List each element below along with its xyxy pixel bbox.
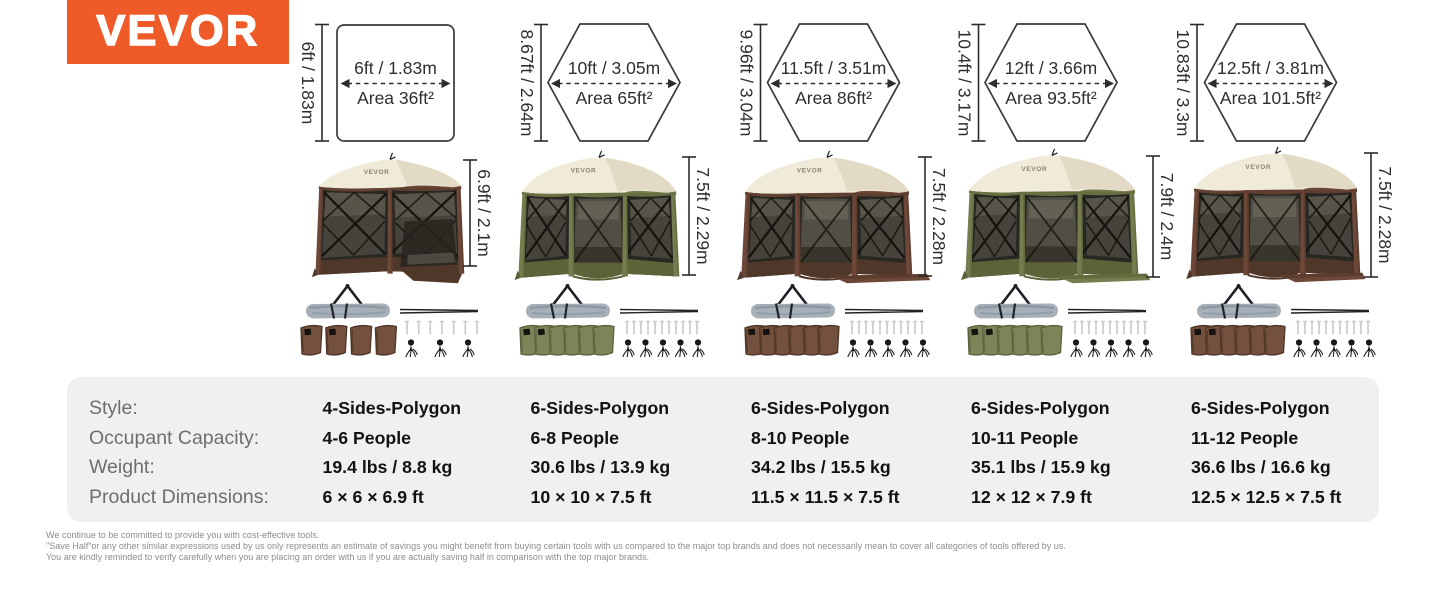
svg-text:10.4ft / 3.17m: 10.4ft / 3.17m (955, 29, 975, 136)
svg-text:10.83ft / 3.3m: 10.83ft / 3.3m (1173, 29, 1193, 136)
svg-text:VEVOR: VEVOR (1021, 166, 1047, 173)
svg-text:7.9ft / 2.4m: 7.9ft / 2.4m (1157, 173, 1177, 261)
svg-text:VEVOR: VEVOR (364, 169, 390, 176)
svg-text:7.5ft / 2.28m: 7.5ft / 2.28m (1375, 166, 1395, 263)
svg-text:6.9ft / 2.1m: 6.9ft / 2.1m (474, 169, 494, 257)
svg-text:8.67ft / 2.64m: 8.67ft / 2.64m (517, 29, 537, 136)
svg-text:Area 86ft²: Area 86ft² (795, 88, 872, 108)
svg-text:7.5ft / 2.28m: 7.5ft / 2.28m (929, 168, 949, 265)
svg-text:9.96ft / 3.04m: 9.96ft / 3.04m (737, 29, 757, 136)
svg-text:VEVOR: VEVOR (1245, 164, 1271, 171)
svg-text:7.5ft / 2.29m: 7.5ft / 2.29m (693, 167, 713, 264)
svg-text:Area 93.5ft²: Area 93.5ft² (1005, 88, 1097, 108)
svg-text:6ft / 1.83m: 6ft / 1.83m (354, 58, 437, 78)
svg-text:6ft / 1.83m: 6ft / 1.83m (298, 42, 318, 125)
svg-text:Area 101.5ft²: Area 101.5ft² (1220, 88, 1321, 108)
svg-text:10ft / 3.05m: 10ft / 3.05m (568, 58, 660, 78)
svg-text:11.5ft / 3.51m: 11.5ft / 3.51m (781, 58, 887, 78)
svg-text:VEVOR: VEVOR (571, 168, 597, 175)
svg-text:Area 65ft²: Area 65ft² (576, 88, 653, 108)
svg-text:12.5ft / 3.81m: 12.5ft / 3.81m (1217, 58, 1324, 78)
svg-text:Area 36ft²: Area 36ft² (357, 88, 434, 108)
svg-text:12ft / 3.66m: 12ft / 3.66m (1005, 58, 1097, 78)
svg-text:VEVOR: VEVOR (797, 168, 823, 175)
